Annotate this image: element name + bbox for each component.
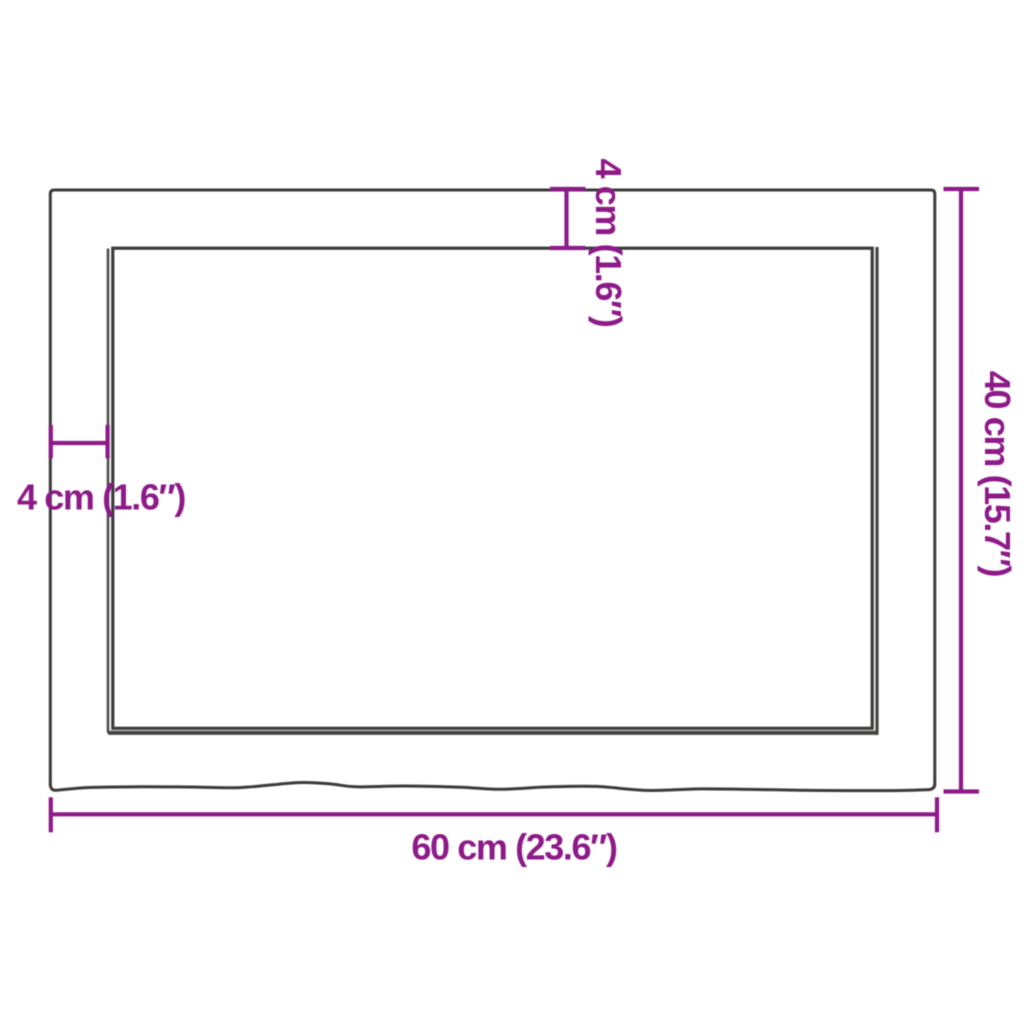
svg-text:40 cm (15.7″): 40 cm (15.7″) [977,371,1018,577]
svg-text:60 cm (23.6″): 60 cm (23.6″) [411,827,617,868]
svg-text:4 cm (1.6″): 4 cm (1.6″) [588,159,629,327]
svg-text:4 cm (1.6″): 4 cm (1.6″) [17,477,185,518]
